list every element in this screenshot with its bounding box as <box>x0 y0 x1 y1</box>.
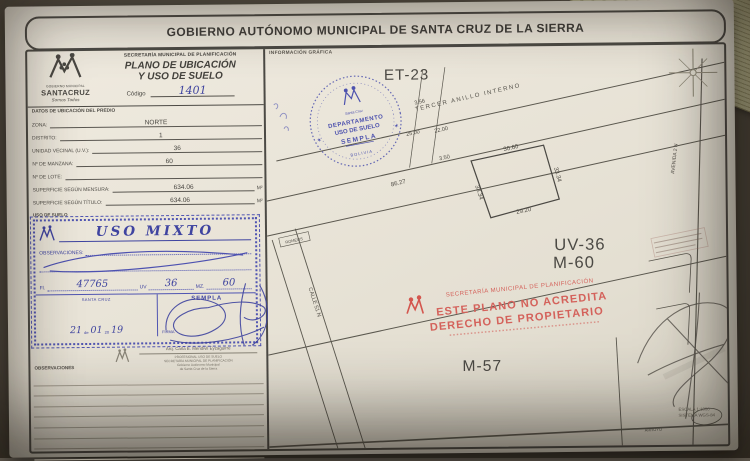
title-block: GOBIERNO MUNICIPAL SANTACRUZ Somos Todos… <box>27 49 264 107</box>
round-stamp-line5: BOLIVIA <box>350 149 373 158</box>
round-department-stamp: Santa Cruz DEPARTAMENTO USO DE SUELO SEM… <box>303 69 409 174</box>
ruled-line <box>34 447 264 460</box>
document-title: GOBIERNO AUTÓNOMO MUNICIPAL DE SANTA CRU… <box>167 21 585 39</box>
label-et-23: ET-23 <box>384 66 430 83</box>
codigo-label: Código <box>127 92 146 98</box>
parcel-dim-bottom: 29.20 <box>516 207 533 216</box>
santa-cruz-logo-icon <box>34 53 96 80</box>
signatory-logo-icon <box>114 347 130 365</box>
plan-title-line2: Y USO DE SUELO <box>138 71 223 83</box>
blue-ink-marks <box>274 104 289 131</box>
date-year-prefix: 20 <box>105 330 110 335</box>
arroyo-label: ARROYO <box>645 427 663 433</box>
uso-mixto-title: USO MIXTO <box>59 222 251 242</box>
plan-title: PLANO DE UBICACIÓN Y USO DE SUELO <box>103 59 257 83</box>
document-body: GOBIERNO MUNICIPAL SANTACRUZ Somos Todos… <box>25 42 730 453</box>
santa-cruz-logo: GOBIERNO MUNICIPAL SANTACRUZ Somos Todos <box>27 51 104 107</box>
informacion-grafica-label: INFORMACIÓN GRÁFICA <box>269 50 332 56</box>
red-stamp-logo-icon <box>407 296 423 314</box>
red-stamp-text: SECRETARÍA MUNICIPAL DE PLANIFICACIÓN ES… <box>429 277 608 334</box>
field-label: SUPERFICIE SEGÚN TÍTULO: <box>33 200 106 207</box>
parcel-dim-left: 33.34 <box>473 185 484 202</box>
left-panel: GOBIERNO MUNICIPAL SANTACRUZ Somos Todos… <box>27 49 269 451</box>
stamp-bottom-row: SANTA CRUZ 21 de 01 20 19 SEMPLA FIR <box>36 292 256 337</box>
observaciones-label: OBSERVACIONES <box>34 365 74 370</box>
round-stamp-star-right: ✶ <box>394 122 400 130</box>
photo-background: GOBIERNO AUTÓNOMO MUNICIPAL DE SANTA CRU… <box>0 0 750 458</box>
street-calle-51: CALLE 51 N <box>307 287 322 318</box>
field-row-superficie-titulo: SUPERFICIE SEGÚN TÍTULO: 634.06 M² <box>33 191 263 206</box>
round-stamp-text: Santa Cruz DEPARTAMENTO USO DE SUELO SEM… <box>312 103 403 163</box>
field-value: 634.06 <box>105 196 255 205</box>
observaciones-squiggle <box>37 242 254 274</box>
dim-86-27: 86.27 <box>390 179 407 188</box>
site-data-section: DATOS DE UBICACIÓN DEL PREDIO ZONA: NORT… <box>32 107 263 210</box>
codigo-value-handwritten: 1401 <box>150 85 234 98</box>
codigo-row: Código 1401 <box>103 85 257 99</box>
round-stamp-city-top: Santa Cruz <box>345 109 364 116</box>
uso-de-suelo-label: USO DE SUELO <box>33 212 68 217</box>
field-line: 634.06 <box>105 190 255 206</box>
stamp-signature-area <box>39 254 251 272</box>
secretary-label: SECRETARÍA MUNICIPAL DE PLANIFICACIÓN <box>103 52 257 59</box>
map-panel: INFORMACIÓN GRÁFICA <box>265 44 728 449</box>
fl-value-handwritten: 47765 <box>47 279 138 291</box>
handwritten-signature <box>160 277 271 356</box>
signatory-org2: de Santa Cruz de la Sierra <box>133 366 263 372</box>
site-map: 3.56 25.00 22.00 3.50 86.27 30.60 33.34 … <box>265 44 728 449</box>
pencil-signature-scrawl <box>637 292 728 419</box>
date-year-handwritten: 19 <box>111 325 123 335</box>
label-m-60: M-60 <box>553 253 595 272</box>
field-unit: M² <box>255 198 263 204</box>
label-m-57: M-57 <box>462 358 502 375</box>
plan-title-line1: PLANO DE UBICACIÓN <box>125 59 236 71</box>
round-stamp-logo-icon <box>341 86 360 105</box>
dim-22-00: 22.00 <box>434 126 449 135</box>
logo-tagline-text: Somos Todos <box>28 97 104 103</box>
stamp-title-row: USO MIXTO <box>35 219 255 243</box>
street-tercer-anillo: TERCER ANILLO INTERNO <box>415 83 522 113</box>
scale-line1: ESCALA 1:1000 <box>678 406 710 411</box>
map-roads <box>265 58 728 449</box>
stamp-date-cell: SANTA CRUZ 21 de 01 20 19 <box>36 294 158 337</box>
date-day-handwritten: 21 <box>70 326 82 336</box>
stamp-date-row: 21 de 01 20 19 <box>38 325 155 336</box>
street-ramal-label: ROMEOS <box>285 236 304 245</box>
dimension-labels: 3.56 25.00 22.00 3.50 86.27 30.60 33.34 … <box>390 97 563 217</box>
date-month-handwritten: 01 <box>90 325 102 335</box>
date-de-label: de <box>84 330 89 335</box>
label-uv-36: UV-36 <box>554 235 605 254</box>
dim-25-00: 25.00 <box>406 129 421 138</box>
plan-title-block: SECRETARÍA MUNICIPAL DE PLANIFICACIÓN PL… <box>103 49 264 106</box>
stamp-firma-cell: SEMPLA FIRMA <box>158 293 256 336</box>
stamp-logo-icon <box>38 225 56 241</box>
stamp-city-label: SANTA CRUZ <box>36 296 157 302</box>
scale-line2: SISTEMA WGS-84 <box>679 412 716 417</box>
red-disclaimer-stamp: SECRETARÍA MUNICIPAL DE PLANIFICACIÓN ES… <box>407 277 608 335</box>
uv-label: UV <box>140 284 147 290</box>
north-star-icon <box>669 48 718 97</box>
faint-mini-stamp <box>651 228 708 257</box>
observaciones-ruled-lines <box>34 373 265 447</box>
fl-label: Fl. <box>40 285 46 291</box>
uso-mixto-stamp-box: USO MIXTO OBSERVACIONES: Fl. <box>33 217 258 345</box>
scanned-plan-document: GOBIERNO AUTÓNOMO MUNICIPAL DE SANTA CRU… <box>5 0 739 458</box>
